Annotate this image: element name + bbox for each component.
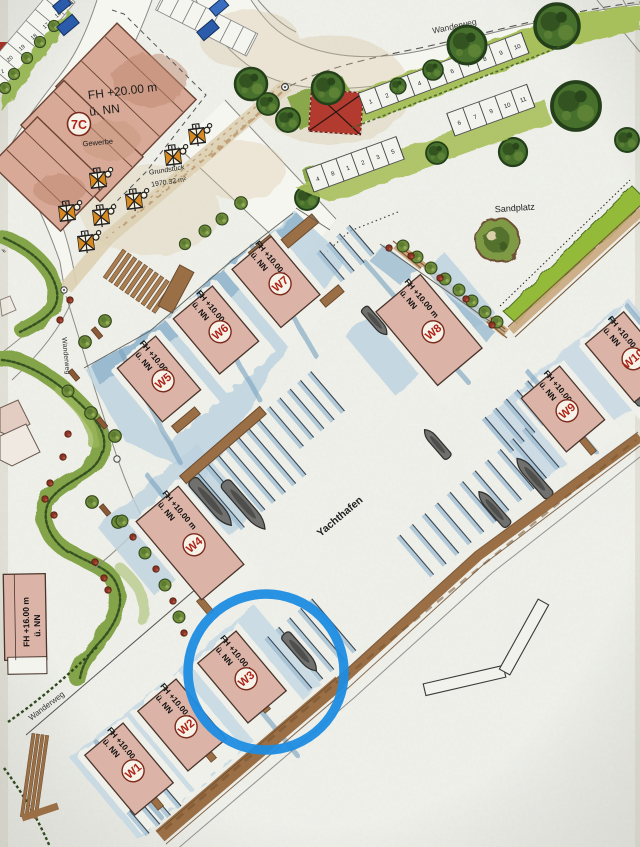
svg-text:FH +16.00 m: FH +16.00 m <box>21 597 32 647</box>
svg-text:ü. NN: ü. NN <box>32 615 42 637</box>
svg-text:7C: 7C <box>71 118 87 132</box>
